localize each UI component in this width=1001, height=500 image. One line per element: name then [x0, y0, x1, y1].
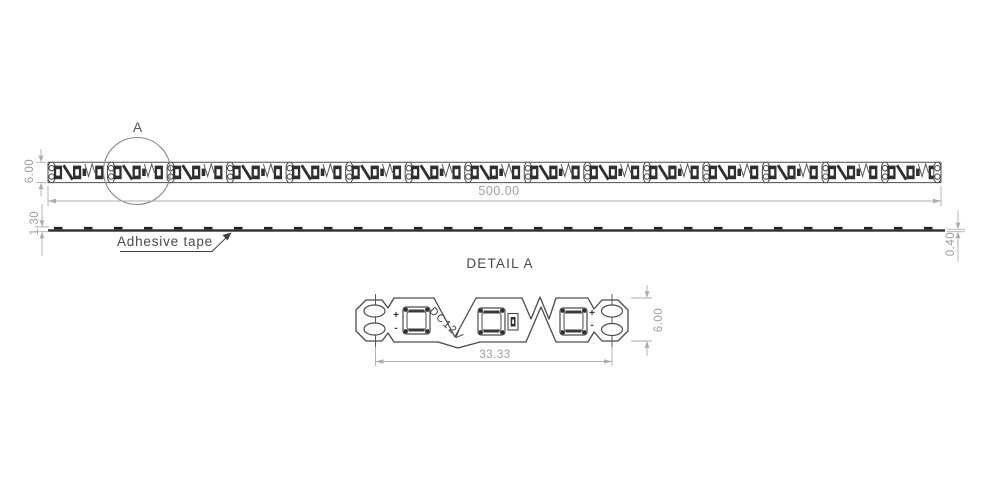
- detail-width-dim-text: 6.00: [653, 300, 665, 340]
- resistor-component: [508, 314, 518, 331]
- strip-width-dimension: [36, 149, 46, 197]
- polarity-minus-left: -: [390, 324, 402, 334]
- detail-view-title: DETAIL A: [430, 256, 570, 271]
- led-package-1: [403, 307, 430, 334]
- side-view-tape: [48, 227, 945, 232]
- detail-marker-label: A: [128, 119, 148, 135]
- detail-width-dimension: [631, 285, 652, 356]
- tape-thickness-dim-text: 0.40: [945, 224, 957, 264]
- total-thickness-dim-text: 1.30: [29, 203, 41, 243]
- polarity-minus-right: -: [586, 321, 598, 331]
- top-view-strip: [48, 162, 941, 182]
- led-package-3: [560, 308, 587, 335]
- led-package-2: [478, 308, 505, 335]
- strip-length-dim-text: 500.00: [459, 184, 539, 198]
- led-strip-technical-drawing: A 6.00 500.00 1.30 Adhesive tape 0.40 DE…: [0, 0, 1001, 500]
- adhesive-tape-label: Adhesive tape: [117, 234, 213, 249]
- polarity-plus-right: +: [586, 309, 598, 319]
- polarity-plus-left: +: [390, 311, 402, 321]
- strip-width-dim-text: 6.00: [24, 151, 36, 191]
- segment-length-dim-text: 33.33: [455, 349, 535, 361]
- drawing-linework: [0, 0, 1001, 500]
